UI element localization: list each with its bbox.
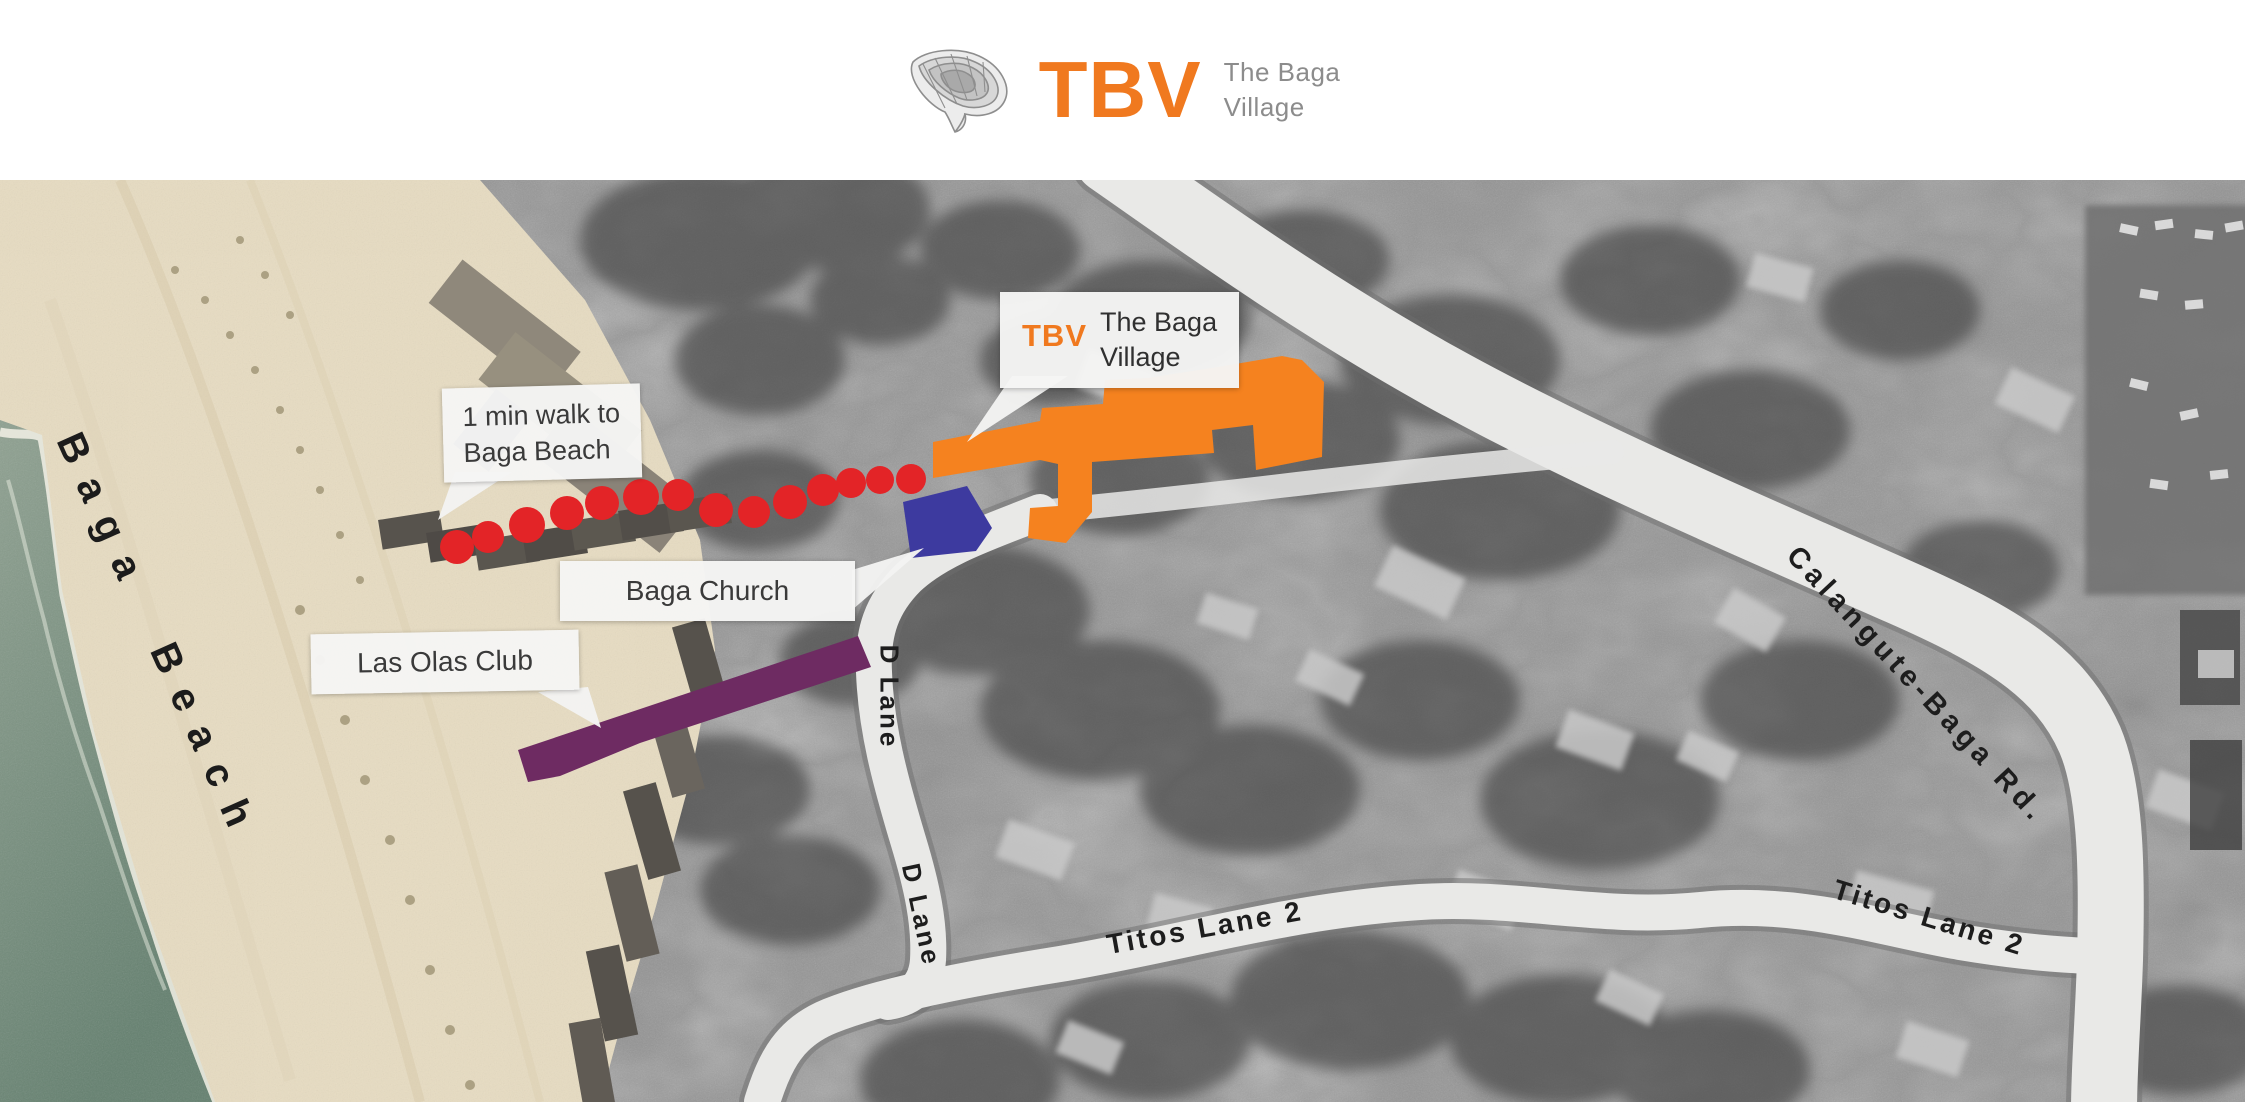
las-olas-callout: Las Olas Club (311, 630, 580, 694)
walk-callout-line1: 1 min walk to (462, 395, 620, 435)
tbv-callout-name: The Baga Village (1100, 305, 1217, 375)
page: TBV The Baga Village (0, 0, 2245, 1102)
brand-logo[interactable]: TBV The Baga Village (905, 44, 1341, 136)
tbv-callout-line1: The Baga (1100, 305, 1217, 340)
brand-abbr: TBV (1039, 50, 1202, 130)
tbv-callout-line2: Village (1100, 340, 1217, 375)
walk-callout-line2: Baga Beach (463, 431, 621, 471)
church-callout: Baga Church (560, 561, 855, 621)
walk-callout: 1 min walk to Baga Beach (442, 383, 642, 482)
location-map: Baga Beach Calangute-Baga Rd. Titos Lane… (0, 180, 2245, 1102)
conch-shell-icon (905, 44, 1017, 136)
tbv-callout-abbr: TBV (1022, 305, 1087, 357)
tbv-callout: TBV The Baga Village (1000, 292, 1239, 388)
site-header: TBV The Baga Village (0, 0, 2245, 180)
brand-name-line1: The Baga (1224, 55, 1341, 90)
brand-name: The Baga Village (1224, 55, 1341, 125)
brand-name-line2: Village (1224, 90, 1341, 125)
road-label-d-lane-1: D Lane (874, 645, 905, 750)
